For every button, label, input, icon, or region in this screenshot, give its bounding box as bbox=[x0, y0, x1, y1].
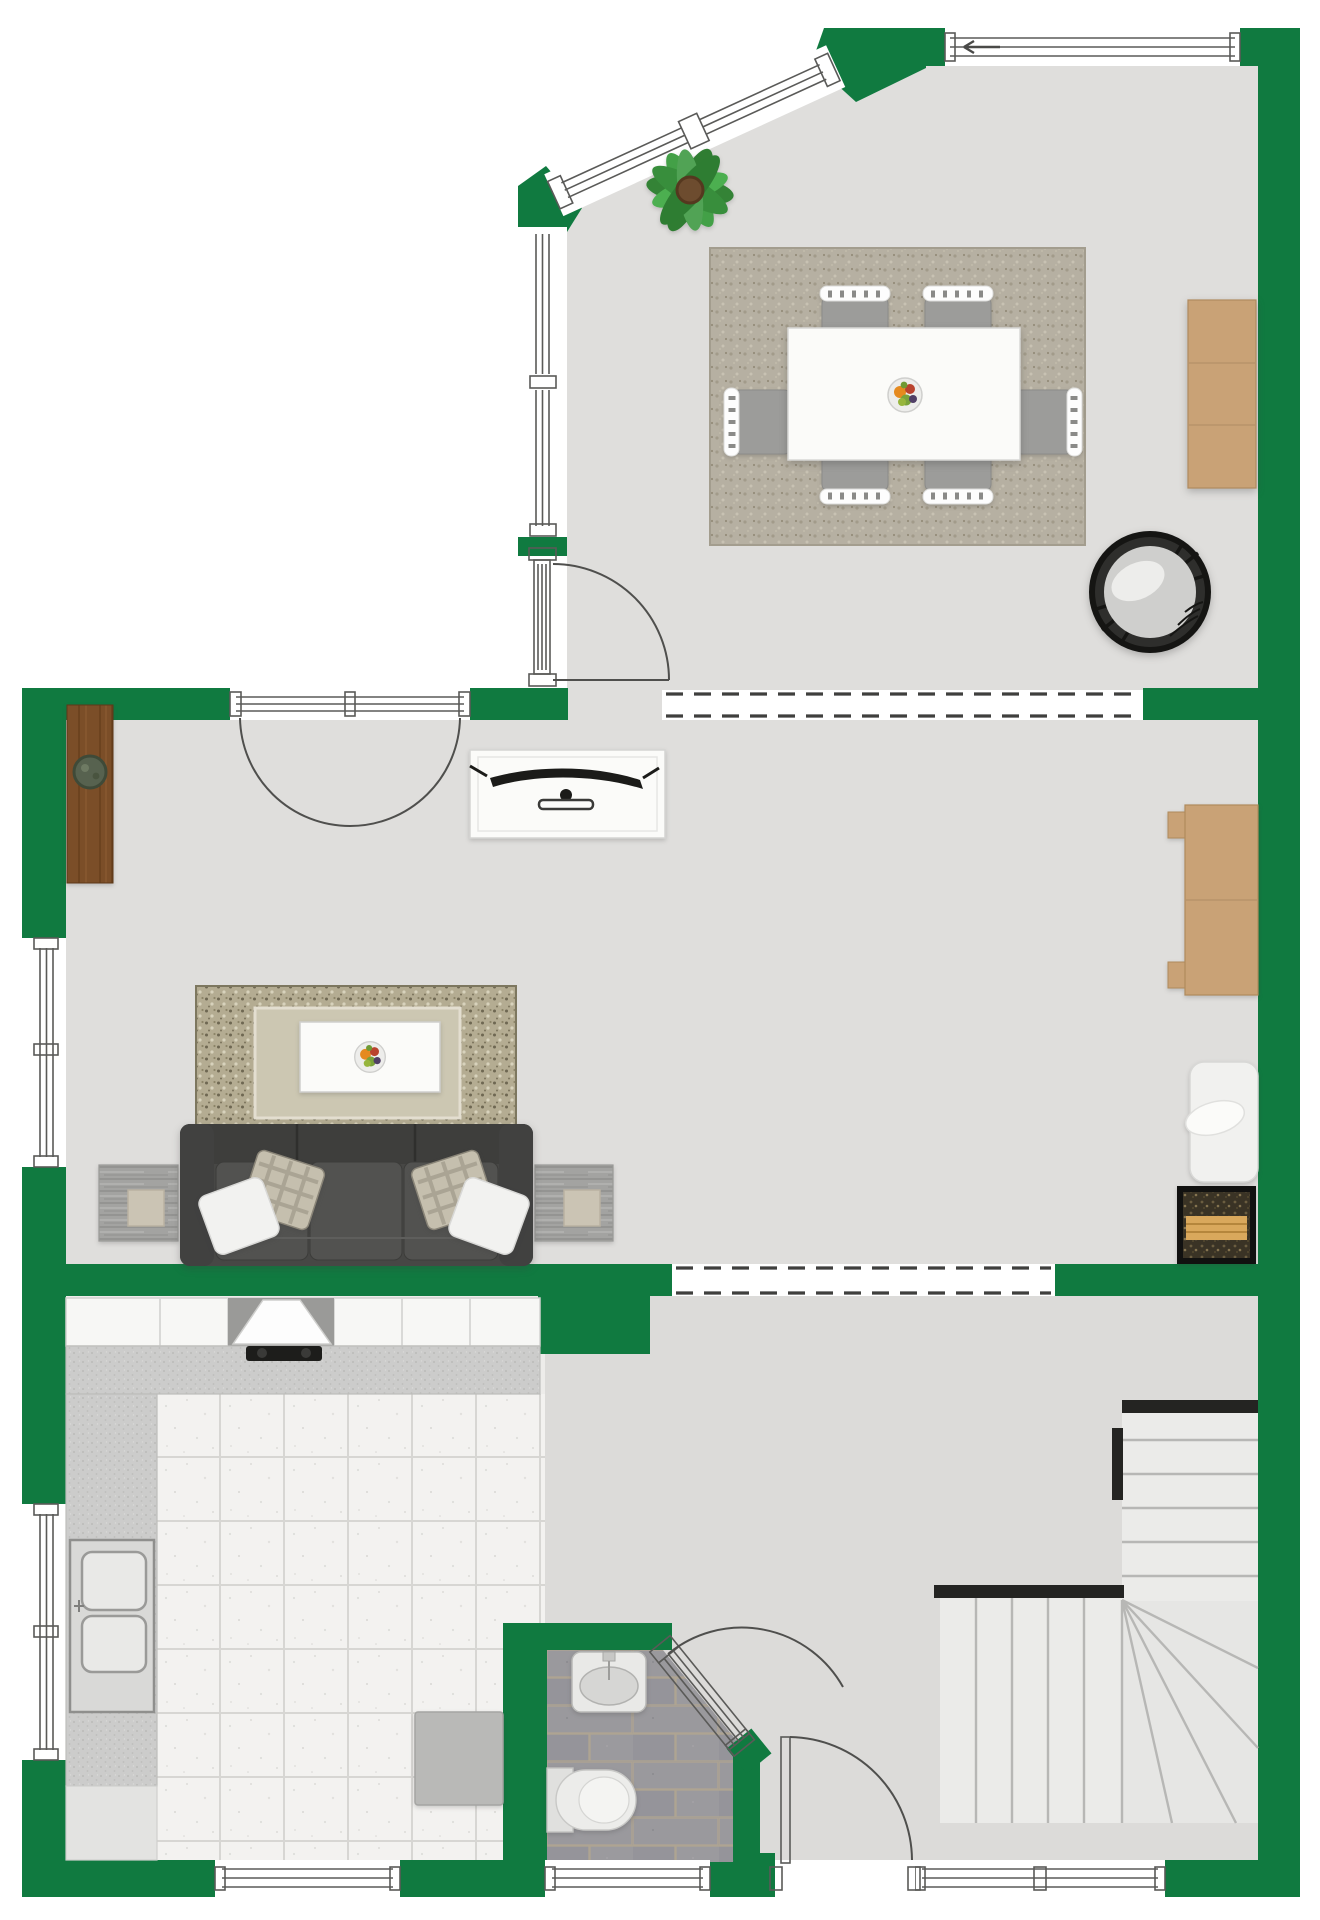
dining-top-window bbox=[945, 28, 1240, 66]
hall-kitchen-pier bbox=[538, 1296, 650, 1354]
bathroom-bottom-window bbox=[545, 1860, 710, 1897]
bottom-wall-1 bbox=[22, 1860, 215, 1897]
coffee-table bbox=[300, 1022, 440, 1092]
stair-edge-lower bbox=[934, 1585, 1124, 1598]
floor-plan-canvas bbox=[0, 0, 1320, 1920]
hallway-bottom-window bbox=[915, 1860, 1165, 1897]
kitchen-left-window bbox=[22, 1504, 66, 1760]
kitchen-appliance bbox=[415, 1712, 503, 1805]
bathroom-left-wall bbox=[503, 1623, 547, 1860]
living-top-wall-right bbox=[1143, 688, 1258, 720]
living-bottom-wall-left bbox=[22, 1264, 672, 1296]
dining-left-wall-stub bbox=[518, 535, 567, 556]
right-wall bbox=[1258, 28, 1300, 1897]
wicker-chair bbox=[1090, 532, 1210, 652]
floor-plan-drawing bbox=[0, 0, 1320, 1920]
bottom-wall-3 bbox=[1165, 1860, 1300, 1897]
wall-shelf bbox=[67, 705, 113, 883]
sideboard bbox=[1188, 300, 1256, 488]
living-hallway-passage bbox=[672, 1264, 1055, 1296]
toilet bbox=[547, 1768, 636, 1832]
stair-edge-upper bbox=[1122, 1400, 1258, 1413]
dining-living-passage bbox=[662, 690, 1143, 720]
kitchen-bottom-window bbox=[215, 1860, 400, 1897]
bottom-wall-2 bbox=[400, 1860, 545, 1897]
living-left-window bbox=[22, 938, 66, 1167]
lounge-chair bbox=[1182, 1062, 1258, 1182]
firewood-rack bbox=[1177, 1186, 1256, 1264]
left-wall-upper bbox=[22, 688, 66, 938]
side-table-left bbox=[99, 1165, 178, 1241]
left-wall-mid bbox=[22, 1167, 66, 1504]
side-table-right bbox=[535, 1165, 613, 1241]
living-bottom-wall-right bbox=[1055, 1264, 1258, 1296]
fruit-bowl bbox=[888, 378, 922, 412]
fruit-bowl bbox=[355, 1042, 386, 1073]
living-top-wall-mid bbox=[470, 688, 568, 720]
kitchen-counter-end bbox=[66, 1786, 157, 1860]
dining-chair bbox=[1014, 388, 1082, 456]
stair-handrail bbox=[1112, 1428, 1123, 1500]
wash-basin bbox=[572, 1652, 646, 1712]
cooktop bbox=[246, 1346, 322, 1361]
dining-left-window bbox=[518, 227, 567, 537]
shelf-plant bbox=[74, 756, 106, 788]
double-sink bbox=[70, 1540, 154, 1712]
dining-chair bbox=[724, 388, 792, 456]
